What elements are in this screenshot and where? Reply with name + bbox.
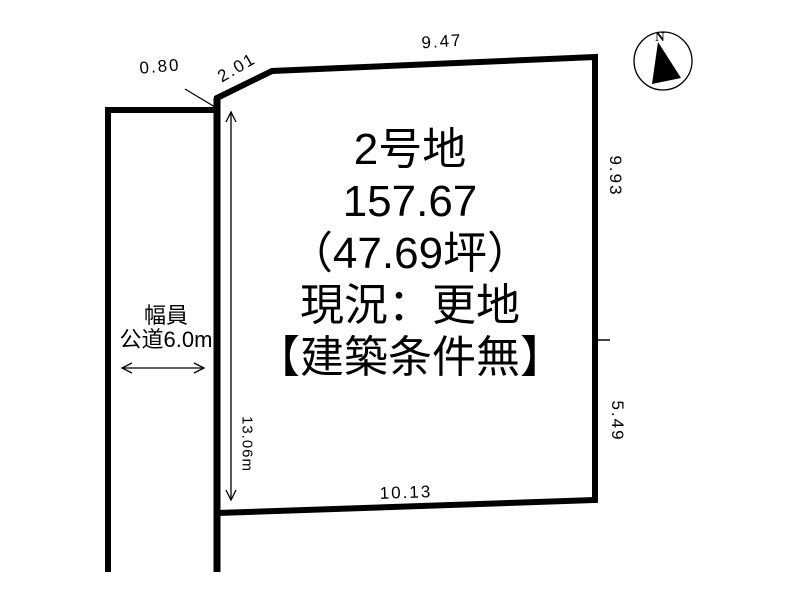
dimension-top-edge: 9.47 (421, 31, 463, 54)
parcel-area-sqm: 157.67 (256, 176, 564, 228)
dimension-right-lower: 5.49 (607, 400, 627, 441)
dimension-top-offset: 0.80 (139, 55, 182, 79)
dimension-left-depth: 13.06m (239, 416, 256, 472)
parcel-name: 2号地 (256, 124, 564, 176)
site-plan-canvas: N 0.80 2.01 9.47 9.93 5.49 10.13 13.06m … (0, 0, 800, 600)
parcel-status: 現況：更地 (256, 280, 564, 332)
dimension-right-upper: 9.93 (605, 155, 625, 196)
road-width-label-line2: 公道6.0m (120, 328, 213, 352)
offset-pointer-line (185, 89, 215, 107)
parcel-condition: 【建築条件無】 (256, 332, 564, 384)
dimension-bottom-edge: 10.13 (379, 482, 432, 504)
depth-dimension-line (226, 112, 236, 500)
compass-north-label: N (655, 29, 664, 45)
road-width-label: 幅員 公道6.0m (120, 304, 213, 352)
road-width-label-line1: 幅員 (120, 304, 213, 328)
parcel-area-tsubo: （47.69坪） (256, 228, 564, 280)
road-width-arrow (122, 363, 204, 373)
parcel-info-block: 2号地 157.67 （47.69坪） 現況：更地 【建築条件無】 (256, 124, 564, 384)
